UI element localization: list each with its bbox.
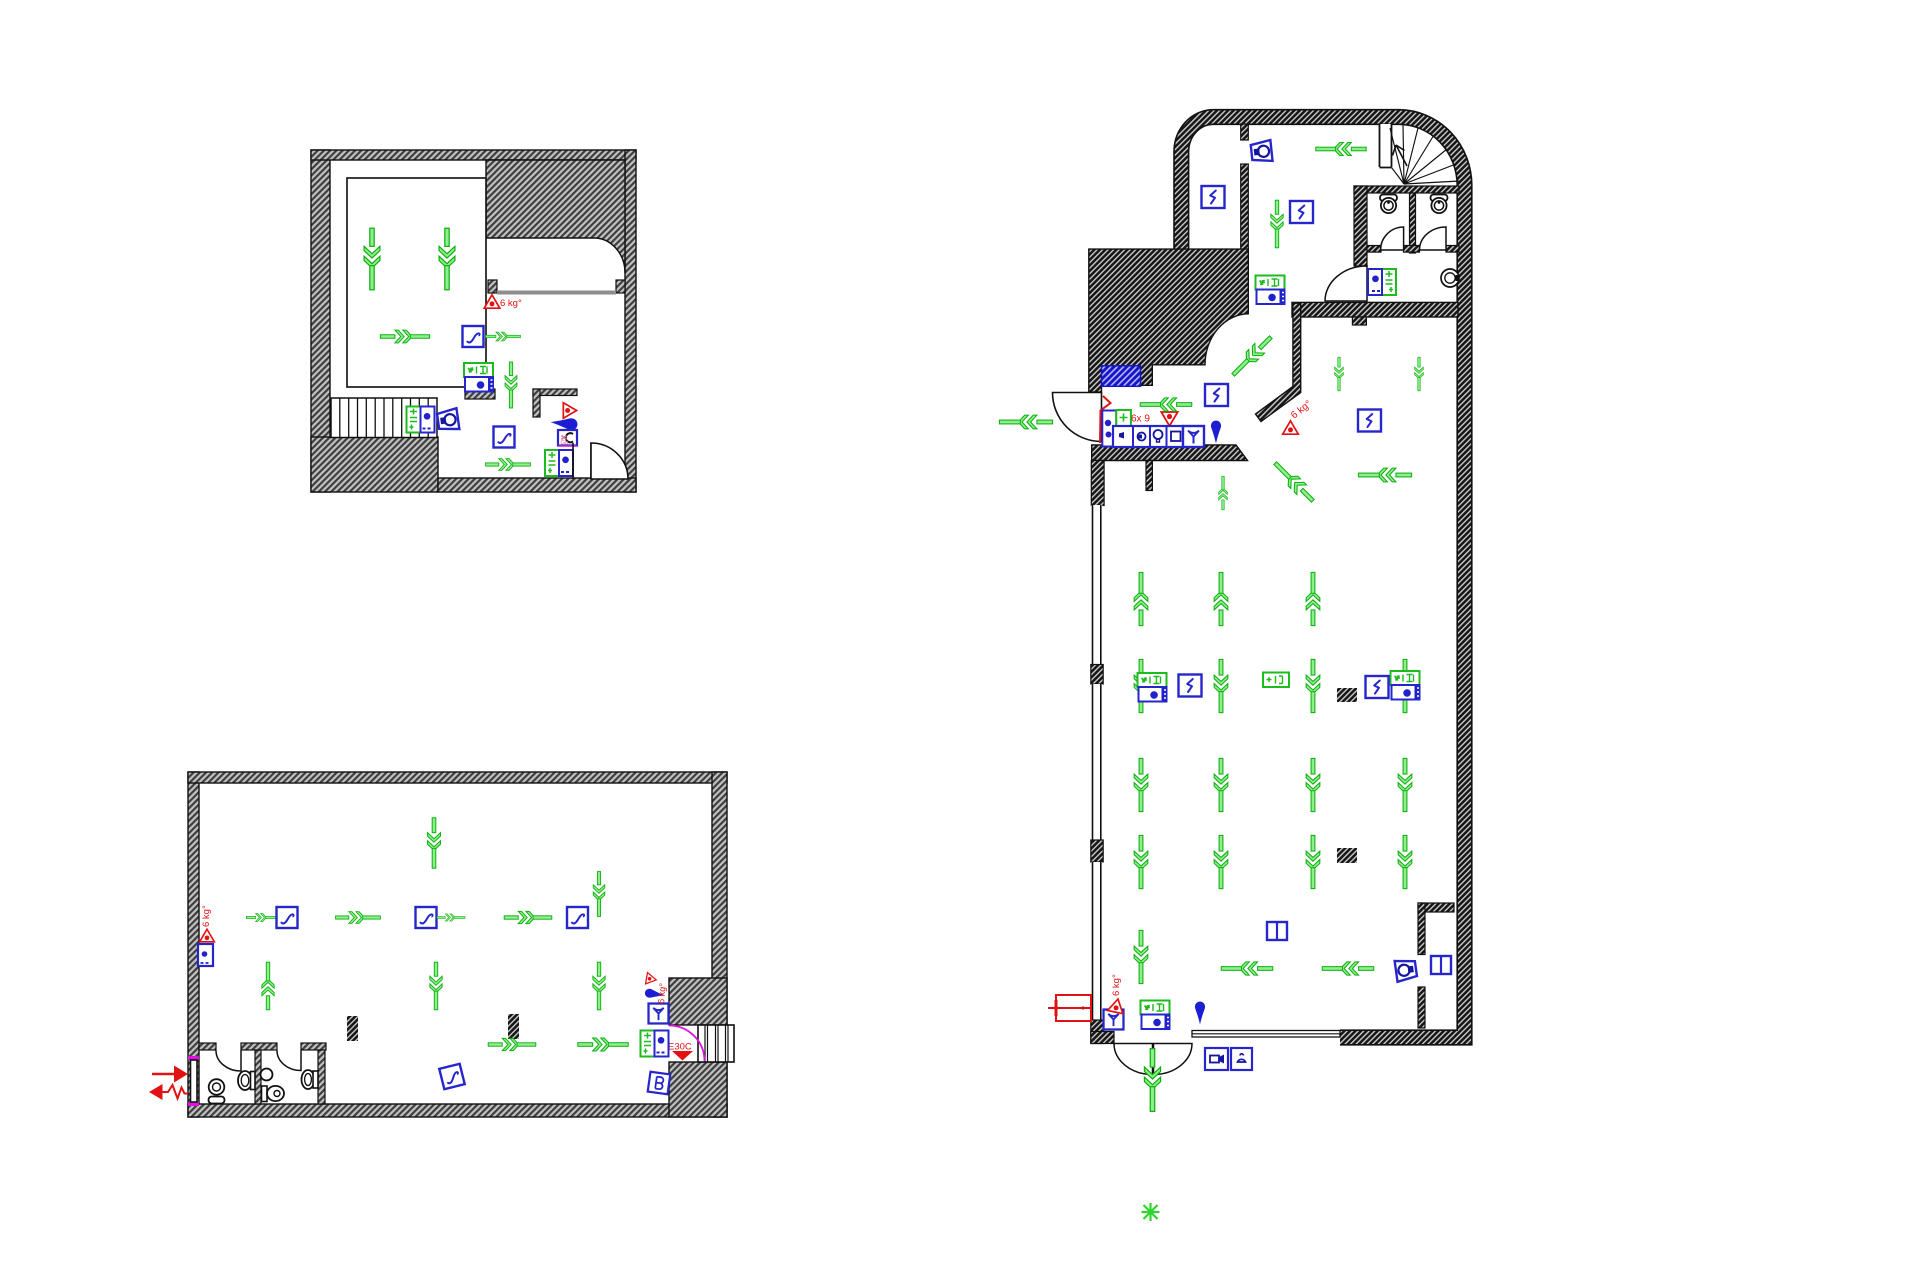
svg-text:6 kg°: 6 kg°: [500, 298, 522, 309]
svg-text:6 kg°: 6 kg°: [656, 982, 668, 1004]
svg-text:6 kg°: 6 kg°: [1111, 974, 1122, 996]
svg-text:6х 9: 6х 9: [1131, 414, 1150, 425]
svg-text:6 kg°: 6 kg°: [201, 905, 212, 927]
svg-text:E30C: E30C: [668, 1042, 692, 1053]
